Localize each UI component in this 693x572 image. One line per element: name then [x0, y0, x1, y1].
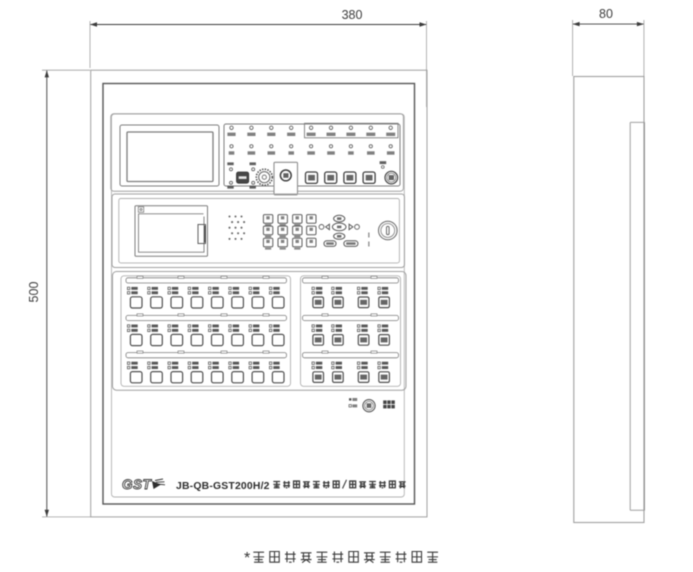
svg-text:80: 80	[599, 7, 613, 21]
svg-text:JB-QB-GST200H/2: JB-QB-GST200H/2	[176, 481, 270, 492]
svg-text:380: 380	[342, 8, 363, 22]
svg-text:GST: GST	[122, 477, 153, 492]
svg-text:500: 500	[27, 282, 41, 303]
svg-text:*: *	[244, 550, 250, 567]
